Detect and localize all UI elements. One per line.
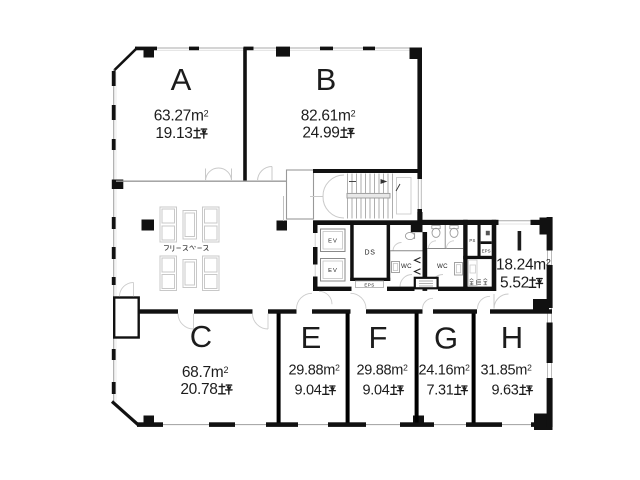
svg-text:68.7m2: 68.7m2 bbox=[182, 364, 229, 381]
svg-text:29.88m2: 29.88m2 bbox=[288, 363, 340, 379]
svg-text:G: G bbox=[434, 321, 458, 356]
svg-text:EPS: EPS bbox=[364, 282, 374, 287]
svg-text:29.88m2: 29.88m2 bbox=[356, 363, 408, 379]
svg-text:18.24m2: 18.24m2 bbox=[496, 257, 551, 274]
svg-text:A: A bbox=[171, 62, 192, 97]
svg-text:7.31: 7.31 bbox=[426, 383, 453, 399]
svg-text:82.61m2: 82.61m2 bbox=[301, 108, 356, 125]
svg-text:31.85m2: 31.85m2 bbox=[480, 363, 532, 379]
svg-text:9.04: 9.04 bbox=[362, 383, 389, 399]
svg-text:19.13: 19.13 bbox=[155, 125, 192, 142]
svg-text:WC: WC bbox=[437, 263, 448, 270]
svg-text:9.63: 9.63 bbox=[491, 383, 518, 399]
svg-text:DS: DS bbox=[364, 250, 375, 257]
svg-text:B: B bbox=[316, 62, 337, 97]
svg-text:EV: EV bbox=[328, 268, 338, 274]
svg-text:20.78: 20.78 bbox=[180, 381, 217, 398]
svg-text:C: C bbox=[190, 319, 212, 354]
svg-text:WC: WC bbox=[401, 263, 412, 270]
svg-text:E: E bbox=[301, 320, 322, 355]
svg-text:63.27m2: 63.27m2 bbox=[154, 108, 209, 125]
svg-text:24.99: 24.99 bbox=[302, 125, 339, 142]
svg-text:9.04: 9.04 bbox=[294, 383, 321, 399]
svg-text:24.16m2: 24.16m2 bbox=[418, 363, 470, 379]
svg-text:F: F bbox=[369, 320, 388, 355]
svg-text:5.52: 5.52 bbox=[500, 275, 529, 292]
svg-text:EPS: EPS bbox=[482, 249, 491, 254]
svg-text:H: H bbox=[501, 320, 523, 355]
svg-text:PS: PS bbox=[469, 238, 475, 243]
svg-text:EV: EV bbox=[328, 239, 338, 245]
